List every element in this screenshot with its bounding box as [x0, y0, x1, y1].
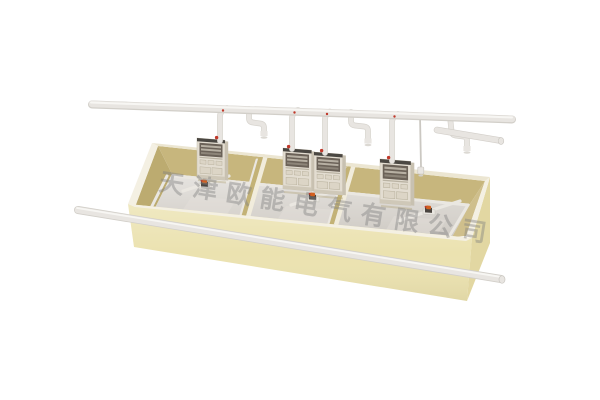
rod-fitting [418, 167, 424, 174]
side-pipe [437, 130, 504, 144]
meter-connector-dot [387, 156, 390, 159]
meter-cabinet-4 [380, 159, 414, 206]
rail-connector-dot [222, 109, 224, 111]
meter-cabinet-3 [314, 152, 346, 195]
rail-connector-dot [293, 111, 295, 113]
product-image: 天津欧能电气有限公司 [0, 0, 600, 400]
rail-pipe-body [92, 104, 512, 119]
hook-pipe-1-mouth [261, 136, 268, 139]
lower-pipe-cap [499, 276, 505, 284]
scene-svg: 天津欧能电气有限公司 [0, 0, 600, 400]
rail-connector-dot [326, 113, 328, 115]
rail-connector-dot [393, 115, 395, 117]
meter-connector-dot [320, 149, 323, 152]
side-pipe-cap [498, 138, 504, 145]
meter-connector-dot [215, 136, 218, 139]
meter-cabinet-2 [283, 148, 315, 191]
hook-pipe-3-mouth [464, 151, 471, 154]
meter-connector-dot [287, 145, 290, 148]
hanging-rod [420, 116, 421, 168]
rod-fitting-tip [418, 175, 423, 177]
hook-pipe-2-mouth [365, 144, 372, 147]
rail-pipe [91, 103, 512, 120]
